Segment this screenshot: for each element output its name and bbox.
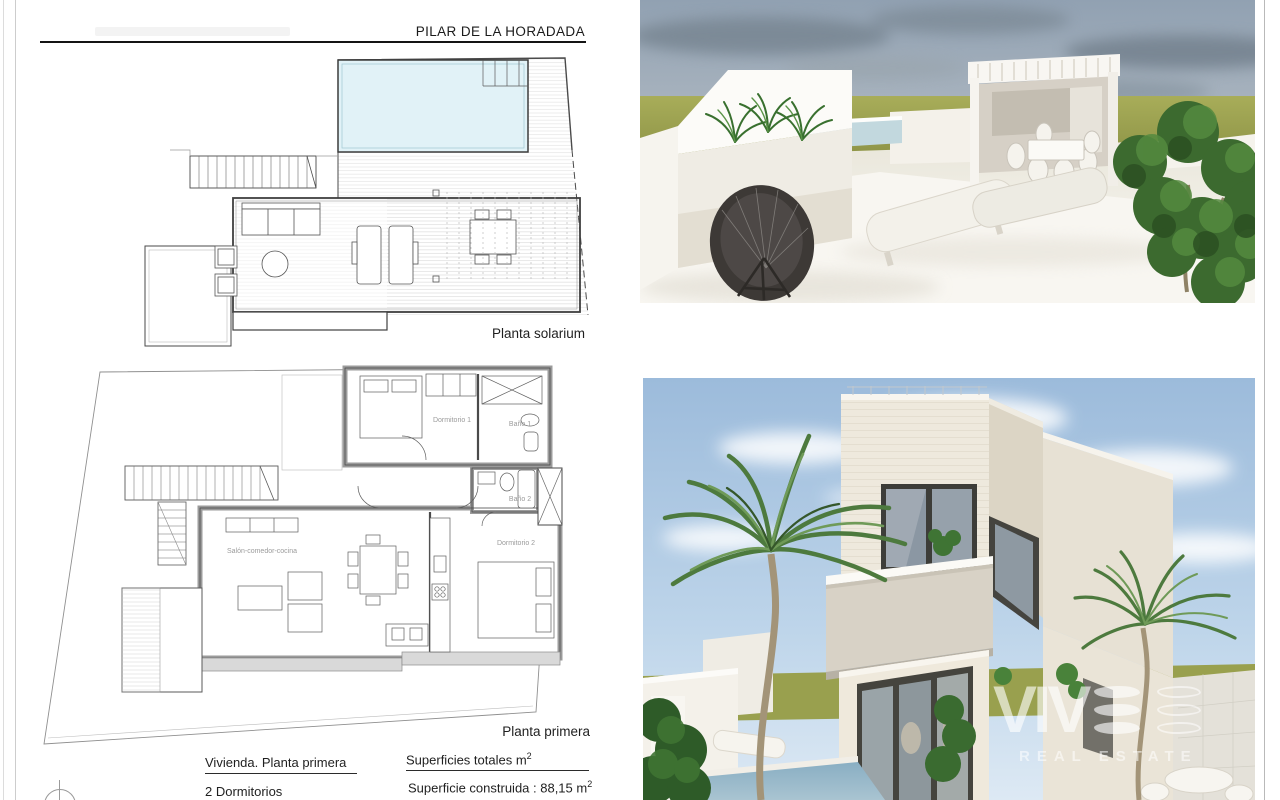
page-title: PILAR DE LA HORADADA [40,24,585,39]
sheet-border-right [1264,0,1265,800]
brochure-page: PILAR DE LA HORADADA [0,0,1280,800]
solarium-plan-label: Planta solarium [492,326,585,341]
room-label-dormitorio2: Dormitorio 2 [497,540,535,547]
dwelling-heading: Vivienda. Planta primera [205,755,357,774]
built-area: Superficie construida : 88,15 m2 [408,779,592,795]
solarium-floor-plan: Planta solarium [125,50,615,350]
upper-window [881,484,977,572]
room-label-salon: Salón-comedor-cocina [227,548,297,555]
north-indicator-icon [44,789,76,800]
title-rule [40,41,586,43]
bedrooms-count: 2 Dormitorios [205,784,282,799]
room-label-bano1: Baño 1 [509,421,531,428]
first-floor-plan-label: Planta primera [502,724,590,739]
solarium-terrace-render [640,0,1255,303]
villa-render: VIV REAL ESTATE [643,378,1255,800]
room-label-dormitorio1: Dormitorio 1 [433,417,471,424]
sheet-border-outer [3,0,4,800]
vive-logo-subtitle: REAL ESTATE [993,748,1253,765]
vive-logo-text: VIV [993,680,1087,739]
stairs [170,150,338,188]
first-floor-plan: Dormitorio 1 Baño 1 Baño 2 Dormitorio 2 … [30,360,615,745]
vive-logo-e-icon [1094,686,1140,734]
vive-logo-e-outline-icon [1147,686,1201,734]
areas-heading: Superficies totales m2 [406,751,589,771]
room-label-bano2: Baño 2 [509,496,531,503]
vive-watermark: VIV REAL ESTATE [993,680,1253,765]
sheet-border-inner [15,0,16,800]
